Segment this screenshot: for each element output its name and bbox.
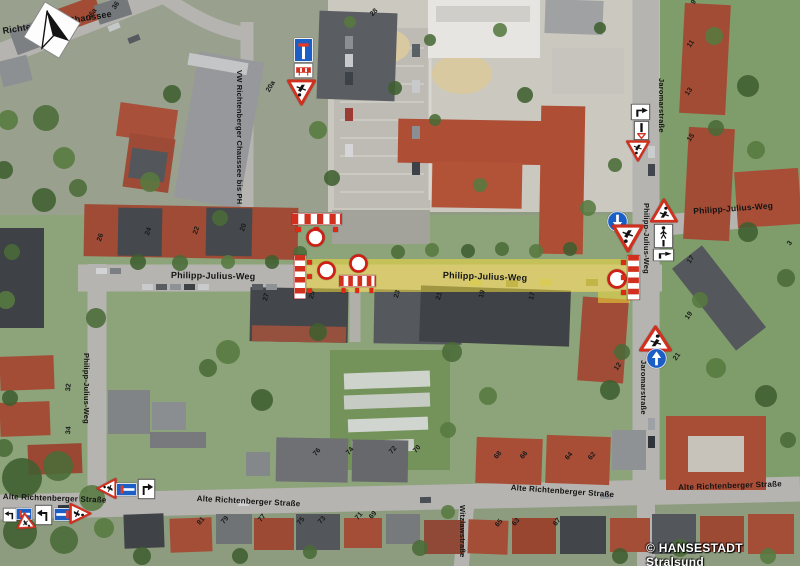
house-number: 71 — [354, 511, 364, 521]
house-number: 81 — [196, 516, 206, 526]
house-number: 70 — [412, 444, 422, 454]
no-vehicles-sign-icon — [349, 254, 368, 273]
roadworks-sign-icon — [650, 198, 678, 223]
house-number: 73 — [317, 515, 327, 525]
street-label: Philipp-Julius-Weg — [693, 201, 773, 215]
roadworks-sign-icon — [69, 503, 92, 524]
house-number: 68 — [493, 450, 503, 460]
warning-lamps-icon — [621, 259, 626, 297]
house-number: 11 — [686, 39, 696, 49]
barrier-icon — [292, 213, 342, 225]
house-number: 36 — [111, 1, 121, 11]
house-number: 15 — [686, 133, 696, 143]
house-number: 79 — [220, 515, 230, 525]
direction-arrow-panel-icon — [3, 508, 17, 522]
street-label: Jaromarstraße — [658, 78, 666, 133]
house-number: 17 — [686, 255, 696, 265]
street-label: VW Richtenberger Chaussee bis PH — [236, 70, 244, 204]
house-number: 19 — [684, 311, 694, 321]
house-number: 13 — [684, 87, 694, 97]
house-number: 72 — [388, 445, 398, 455]
no-vehicles-sign-icon — [317, 261, 336, 280]
house-number: 64 — [564, 451, 574, 461]
roadworks-sign-icon — [626, 140, 650, 162]
house-number: 21 — [435, 291, 444, 300]
house-number: 9 — [690, 0, 698, 6]
street-label: Alte Richtenberger Straße — [510, 484, 614, 499]
warning-lamps-icon — [341, 288, 374, 293]
mandatory-direction-sign-icon — [646, 348, 667, 369]
house-number: 24 — [144, 227, 153, 237]
street-label: Alte Richtenberger Straße — [197, 495, 301, 508]
roadworks-sign-icon — [287, 79, 316, 106]
house-number: 19 — [478, 289, 487, 298]
street-label: Witzlawstraße — [459, 505, 467, 558]
direction-arrow-panel-icon — [653, 249, 674, 261]
house-number: 66 — [519, 450, 529, 460]
priority-bar-panel-icon — [634, 121, 649, 140]
roadworks-sign-icon — [96, 478, 117, 499]
house-number: 32 — [65, 383, 73, 391]
roadworks-sign-icon — [612, 224, 644, 253]
barrier-icon — [627, 255, 640, 300]
no-vehicles-sign-icon — [306, 228, 325, 247]
house-number: 20 — [239, 223, 248, 233]
barrier-icon — [339, 275, 376, 287]
house-number: 34 — [65, 426, 73, 434]
house-number: 28 — [369, 7, 379, 17]
house-number: 23 — [393, 289, 402, 298]
street-label: Alte Richtenberger Straße — [678, 480, 782, 492]
annotation-overlay: Richtenberger ChausseeVW Richtenberger C… — [0, 0, 800, 566]
house-number: 27 — [262, 292, 271, 301]
dead-end-sign-icon — [294, 38, 313, 62]
pedestrian-detour-sign-icon — [654, 224, 673, 248]
house-number: 17 — [528, 291, 537, 300]
house-number: 74 — [345, 446, 355, 456]
house-number: 65 — [494, 518, 504, 528]
house-number: 26 — [96, 233, 105, 243]
house-number: 63 — [511, 517, 521, 527]
warning-lamps-icon — [307, 259, 312, 295]
house-number: 62 — [587, 451, 597, 461]
dead-end-sign-icon — [116, 483, 137, 496]
direction-arrow-panel-icon — [138, 479, 155, 499]
street-label: Philipp-Julius-Weg — [171, 271, 256, 281]
street-label: Philipp-Julius-Weg — [83, 353, 91, 424]
house-number: 21 — [672, 352, 682, 362]
direction-arrow-panel-icon — [631, 104, 650, 120]
barrier-supplementary-sign-icon — [294, 63, 313, 78]
house-number: 20a — [265, 80, 277, 94]
house-number: 12 — [613, 362, 623, 372]
house-number: 76 — [312, 447, 322, 457]
house-number: 77 — [257, 513, 267, 523]
house-number: 75 — [296, 516, 306, 526]
copyright-text: © HANSESTADT Stralsund — [646, 541, 800, 566]
traffic-plan-map: Richtenberger ChausseeVW Richtenberger C… — [0, 0, 800, 566]
house-number: 3 — [786, 240, 794, 247]
street-label: Philipp-Julius-Weg — [443, 271, 528, 283]
house-number: 69 — [368, 510, 378, 520]
house-number: 22 — [192, 226, 201, 236]
barrier-icon — [294, 255, 306, 299]
house-number: 67 — [552, 517, 562, 527]
